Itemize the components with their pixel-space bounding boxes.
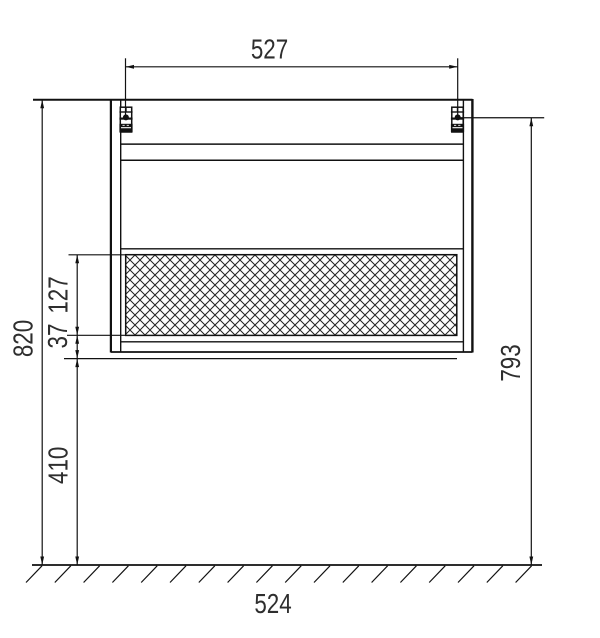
- svg-text:524: 524: [254, 589, 291, 620]
- svg-text:37: 37: [43, 324, 74, 349]
- svg-text:410: 410: [43, 447, 74, 484]
- svg-text:820: 820: [8, 320, 39, 357]
- svg-text:127: 127: [43, 276, 74, 313]
- svg-text:527: 527: [251, 34, 288, 65]
- svg-text:793: 793: [496, 344, 527, 381]
